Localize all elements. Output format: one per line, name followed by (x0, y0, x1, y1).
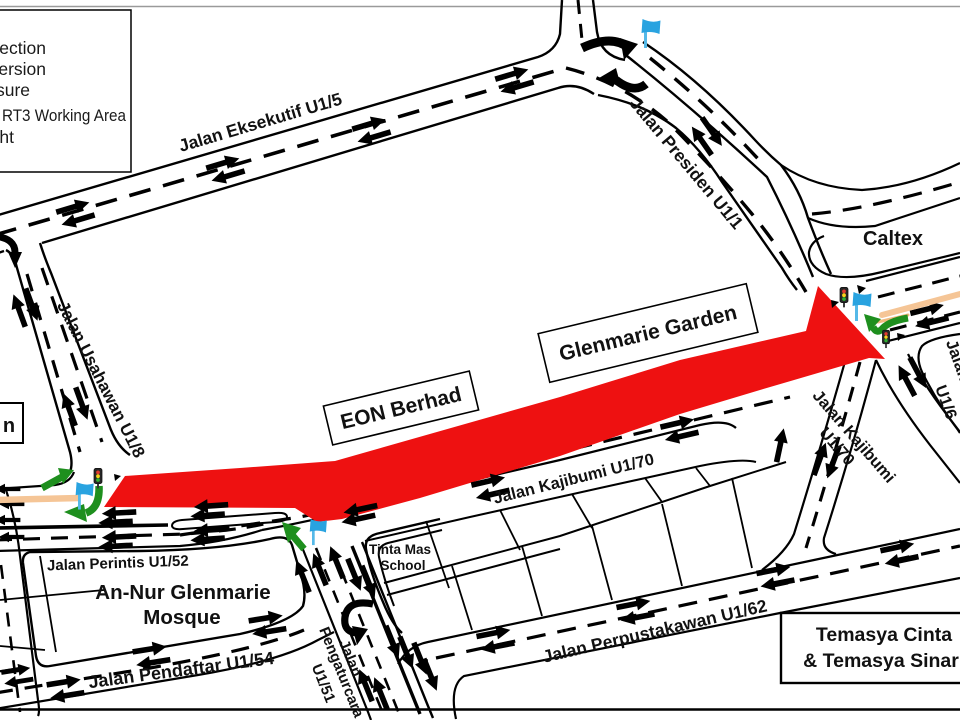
svg-text:Traffic Diversion: Traffic Diversion (0, 59, 46, 79)
svg-text:RT3 Working Area: RT3 Working Area (2, 106, 126, 125)
svg-text:Mosque: Mosque (143, 606, 220, 629)
svg-text:Caltex: Caltex (863, 228, 923, 250)
svg-text:An-Nur Glenmarie: An-Nur Glenmarie (95, 581, 270, 604)
svg-text:Road Closure: Road Closure (0, 80, 30, 100)
svg-text:Traffic Light: Traffic Light (0, 127, 14, 147)
svg-text:Temasya Cinta: Temasya Cinta (816, 624, 952, 646)
svg-text:n: n (3, 415, 15, 437)
svg-text:Traffic Direction: Traffic Direction (0, 38, 46, 58)
svg-text:& Temasya Sinar: & Temasya Sinar (803, 650, 959, 672)
svg-text:School: School (380, 558, 425, 573)
svg-text:Tinta Mas: Tinta Mas (369, 542, 431, 557)
